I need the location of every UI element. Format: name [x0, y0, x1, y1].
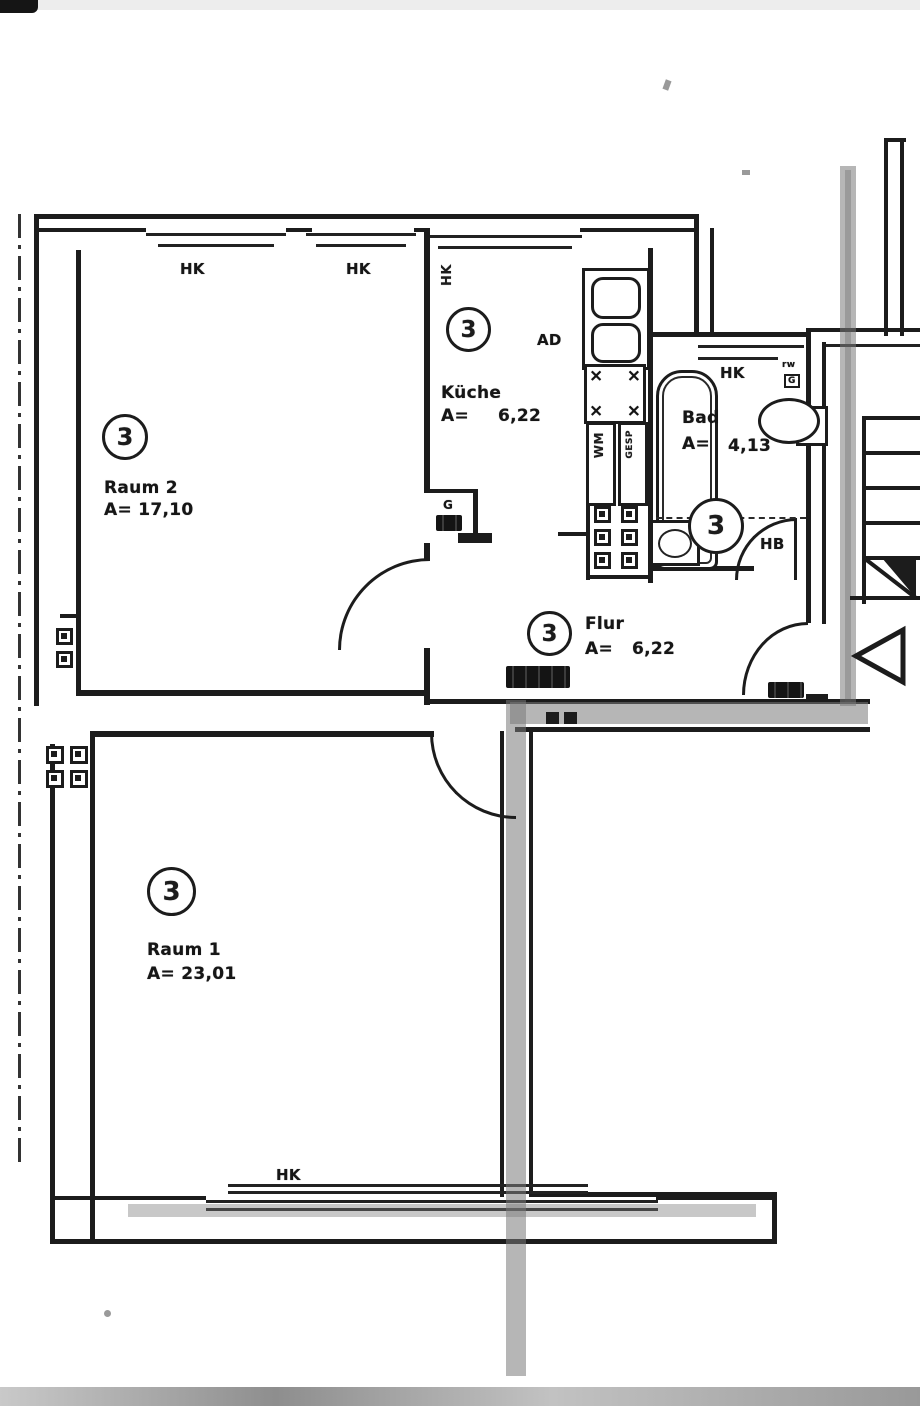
flur-height-badge	[506, 666, 570, 688]
appliance-label: GESP	[625, 430, 635, 459]
kitchen-grid-cell	[594, 529, 611, 546]
radiator-label-vertical: HK	[440, 264, 455, 286]
toilet-tag: G	[784, 374, 800, 388]
sink-basin	[591, 323, 641, 363]
radiator-label: HK	[276, 1166, 301, 1184]
unit-badge-raum1: 3	[147, 867, 196, 916]
flue-symbol	[46, 770, 64, 788]
room-area-raum1: A= 23,01	[147, 964, 237, 984]
room-name-raum1: Raum 1	[147, 940, 221, 960]
room-area-raum2: A= 17,10	[104, 500, 194, 520]
stair-and-arrow-overlay	[0, 0, 920, 1406]
floor-plan-sheet: × × × × WM GESP G rw G 3 3 3 3 3 R	[0, 0, 920, 1406]
kitchen-grid-cell	[594, 552, 611, 569]
washing-machine-label: WM	[592, 432, 606, 458]
burner-icon: ×	[589, 368, 603, 385]
kitchen-grid-cell	[621, 529, 638, 546]
radiator-label: HK	[346, 260, 371, 278]
room-area-prefix-kueche: A=	[441, 406, 469, 426]
room-area-value-bad: 4,13	[728, 436, 771, 456]
unit-badge-raum2: 3	[102, 414, 148, 460]
wall-mark	[564, 712, 577, 724]
vent-label: AD	[537, 331, 562, 349]
sink-basin	[591, 277, 641, 319]
flue-symbol	[56, 651, 73, 668]
radiator-label: HK	[720, 364, 745, 382]
unit-badge-bad: 3	[688, 498, 744, 554]
radiator-label: HK	[180, 260, 205, 278]
wall-mark	[546, 712, 559, 724]
room-name-raum2: Raum 2	[104, 478, 178, 498]
flue-symbol	[56, 628, 73, 645]
room-area-prefix-bad: A=	[682, 434, 710, 454]
room-name-kueche: Küche	[441, 383, 501, 403]
kitchen-grid-cell	[621, 552, 638, 569]
gas-meter-badge	[436, 515, 462, 531]
entry-badge	[768, 682, 804, 698]
entry-direction-arrow	[856, 630, 903, 682]
room-area-value-kueche: 6,22	[498, 406, 541, 426]
kitchen-grid-cell	[621, 506, 638, 523]
plan-drawing: × × × × WM GESP G rw G 3 3 3 3 3 R	[0, 0, 920, 1406]
flue-symbol	[70, 746, 88, 764]
burner-icon: ×	[627, 403, 641, 420]
burner-icon: ×	[627, 368, 641, 385]
room-area-prefix-flur: A=	[585, 639, 613, 659]
burner-icon: ×	[589, 403, 603, 420]
unit-badge-flur: 3	[527, 611, 572, 656]
stove: × × × ×	[584, 364, 646, 424]
flue-symbol	[70, 770, 88, 788]
washbasin-bowl	[658, 529, 692, 558]
hand-basin-label: HB	[760, 535, 785, 553]
room-name-bad: Bad	[682, 408, 720, 428]
toilet-tag: rw	[782, 360, 795, 370]
room-name-flur: Flur	[585, 614, 624, 634]
unit-badge-kueche: 3	[446, 307, 491, 352]
gas-meter-label: G	[443, 498, 453, 512]
kitchen-grid-cell	[594, 506, 611, 523]
room-area-value-flur: 6,22	[632, 639, 675, 659]
flue-symbol	[46, 746, 64, 764]
